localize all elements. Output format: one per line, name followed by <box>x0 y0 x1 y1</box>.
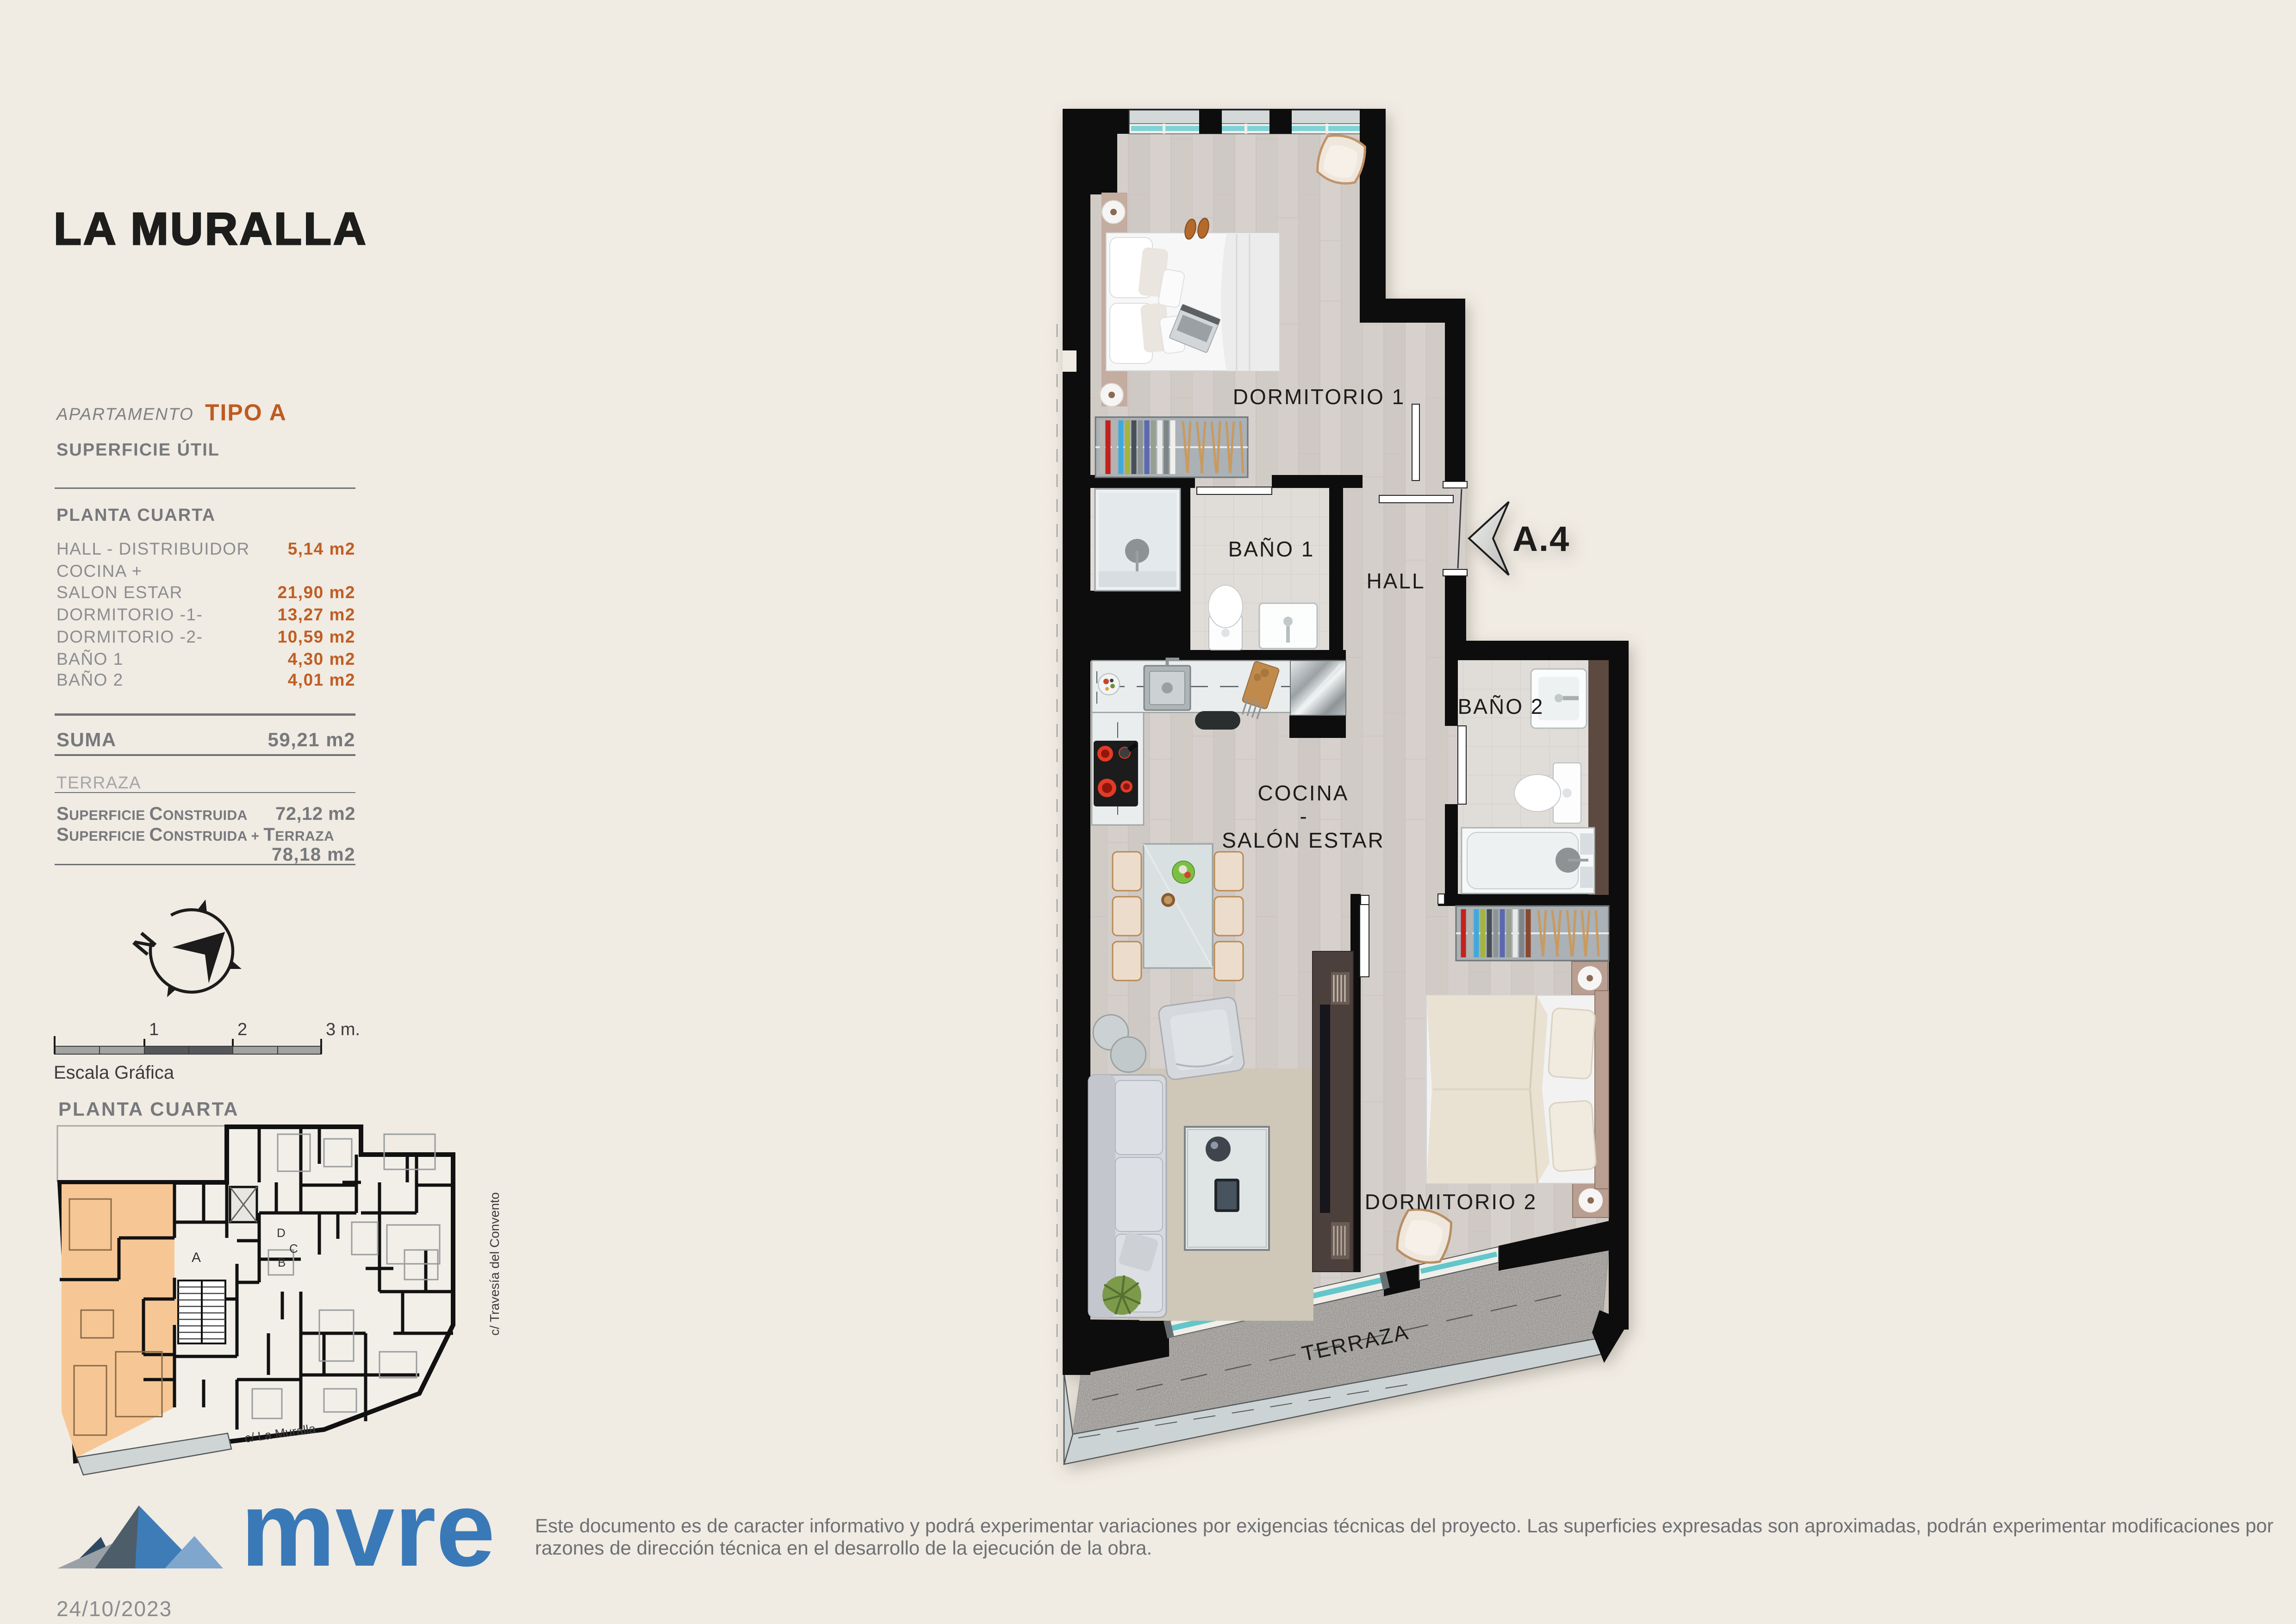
svg-text:BAÑO 2: BAÑO 2 <box>1458 694 1544 718</box>
svg-text:BAÑO 1: BAÑO 1 <box>1228 537 1315 561</box>
svg-text:-: - <box>1300 804 1307 828</box>
svg-text:C: C <box>289 1242 298 1255</box>
svg-text:DORMITORIO 2: DORMITORIO 2 <box>1365 1190 1537 1214</box>
svg-text:A: A <box>192 1250 201 1265</box>
svg-text:D: D <box>277 1226 286 1240</box>
svg-text:c/ Travesía del Convento: c/ Travesía del Convento <box>487 1192 502 1336</box>
svg-text:1: 1 <box>149 1020 159 1039</box>
svg-text:HALL: HALL <box>1366 569 1425 593</box>
svg-text:PLANTA CUARTA: PLANTA CUARTA <box>58 1098 239 1120</box>
svg-text:A.4: A.4 <box>1512 519 1570 559</box>
svg-text:B: B <box>278 1255 286 1269</box>
svg-text:2: 2 <box>237 1020 247 1039</box>
svg-text:COCINA: COCINA <box>1258 781 1349 805</box>
svg-text:Escala Gráfica: Escala Gráfica <box>54 1062 174 1083</box>
svg-text:mvre: mvre <box>241 1469 495 1588</box>
svg-text:DORMITORIO 1: DORMITORIO 1 <box>1233 385 1406 409</box>
svg-text:N: N <box>127 927 162 961</box>
svg-text:SALÓN ESTAR: SALÓN ESTAR <box>1222 828 1385 852</box>
svg-text:3 m.: 3 m. <box>326 1020 360 1039</box>
